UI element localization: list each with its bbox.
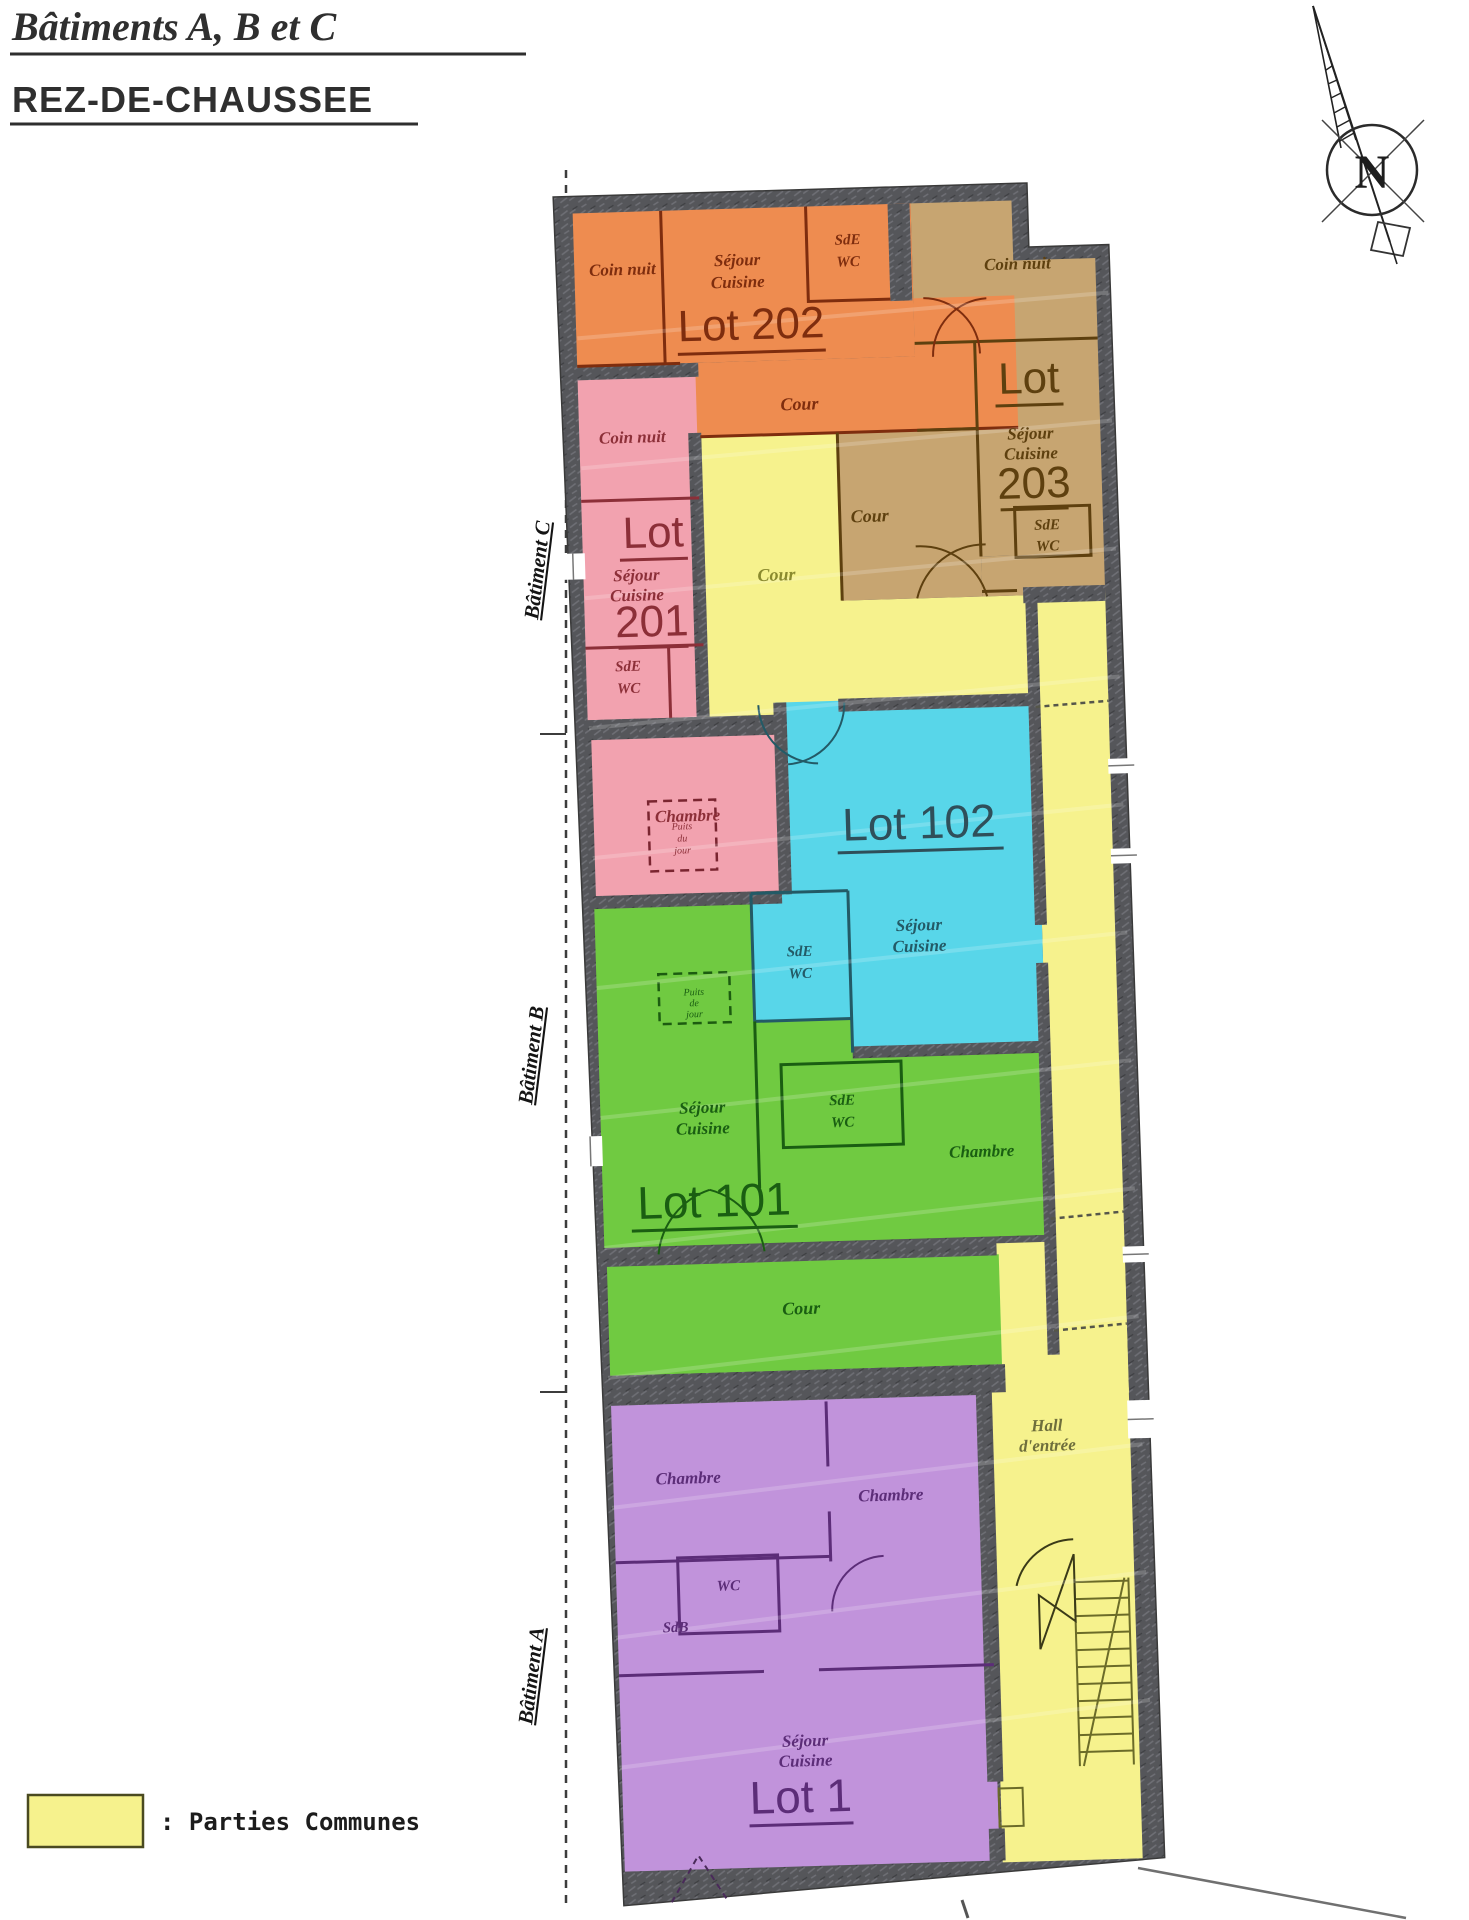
svg-text:Coin nuit: Coin nuit: [589, 259, 657, 280]
svg-text:Cuisine: Cuisine: [676, 1118, 731, 1139]
svg-text:WC: WC: [717, 1578, 742, 1595]
lot203-name: Lot: [997, 353, 1060, 404]
svg-text:WC: WC: [1036, 538, 1061, 555]
lot102-name: Lot 102: [841, 794, 996, 851]
svg-text:Séjour: Séjour: [613, 565, 660, 585]
svg-text:Séjour: Séjour: [714, 250, 761, 270]
central-cour-label: Cour: [757, 564, 797, 585]
legend-swatch: [28, 1795, 143, 1847]
svg-text:Cour: Cour: [780, 393, 820, 414]
svg-text:SdE: SdE: [1034, 517, 1060, 534]
svg-text:du: du: [677, 833, 687, 844]
svg-text:Séjour: Séjour: [895, 915, 942, 935]
svg-text:SdE: SdE: [834, 232, 860, 249]
legend-label: : Parties Communes: [160, 1808, 420, 1836]
svg-text:jour: jour: [684, 1009, 703, 1021]
lot201-name: Lot: [622, 507, 685, 558]
svg-text:Séjour: Séjour: [1007, 423, 1054, 443]
svg-text:Coin nuit: Coin nuit: [984, 253, 1052, 274]
lot202-name: Lot 202: [677, 298, 825, 351]
svg-text:SdE: SdE: [615, 659, 641, 676]
page-title: Bâtiments A, B et C: [11, 4, 337, 49]
svg-text:Chambre: Chambre: [949, 1141, 1015, 1162]
svg-text:Cour: Cour: [850, 505, 890, 526]
svg-text:Puits: Puits: [670, 821, 692, 833]
svg-text:SdE: SdE: [829, 1092, 855, 1109]
lot201-number: 201: [614, 596, 689, 647]
floor-subtitle: REZ-DE-CHAUSSEE: [12, 79, 373, 120]
svg-text:Cour: Cour: [782, 1298, 822, 1319]
compass-north-label: N: [1355, 146, 1390, 199]
building-plan: Coin nuit Séjour Cuisine SdE WC Lot 202 …: [551, 180, 1167, 1906]
svg-text:WC: WC: [788, 966, 813, 983]
svg-text:Puits: Puits: [682, 987, 704, 999]
svg-text:d'entrée: d'entrée: [1019, 1435, 1077, 1456]
svg-text:WC: WC: [836, 254, 861, 271]
lot1-name: Lot 1: [749, 1769, 853, 1824]
svg-text:jour: jour: [672, 845, 691, 857]
svg-text:WC: WC: [617, 681, 642, 698]
svg-text:Séjour: Séjour: [782, 1731, 829, 1751]
svg-text:SdE: SdE: [786, 944, 812, 961]
floor-plan-page: Bâtiments A, B et C REZ-DE-CHAUSSEE N Bâ…: [0, 0, 1469, 1920]
svg-text:Chambre: Chambre: [655, 1468, 721, 1489]
svg-text:Hall: Hall: [1030, 1415, 1063, 1435]
svg-text:SdB: SdB: [662, 1620, 688, 1637]
lot101-name: Lot 101: [637, 1172, 792, 1229]
svg-text:Cuisine: Cuisine: [892, 936, 947, 957]
svg-text:Coin nuit: Coin nuit: [599, 427, 667, 448]
svg-text:Chambre: Chambre: [858, 1485, 924, 1506]
svg-text:Séjour: Séjour: [679, 1097, 726, 1117]
svg-text:de: de: [689, 998, 699, 1009]
lot203-number: 203: [996, 458, 1071, 509]
svg-text:WC: WC: [831, 1114, 856, 1131]
svg-text:Cuisine: Cuisine: [711, 272, 766, 293]
svg-text:Cuisine: Cuisine: [778, 1750, 833, 1771]
